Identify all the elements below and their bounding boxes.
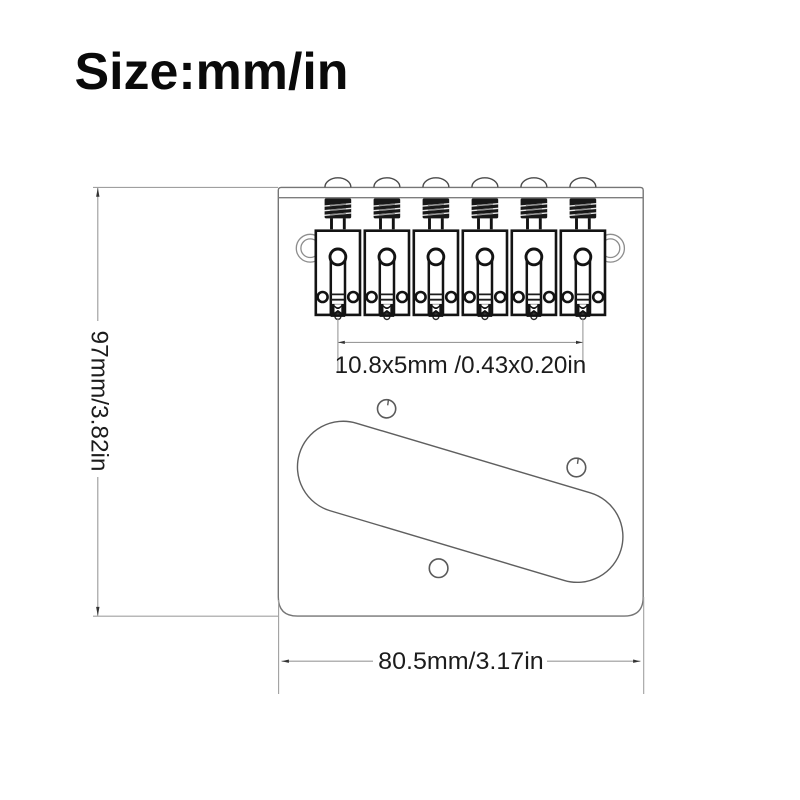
svg-text:Size:mm/in: Size:mm/in (75, 43, 349, 101)
svg-text:10.8x5mm /0.43x0.20in: 10.8x5mm /0.43x0.20in (335, 352, 587, 379)
svg-text:97mm/3.82in: 97mm/3.82in (86, 331, 113, 472)
svg-text:80.5mm/3.17in: 80.5mm/3.17in (378, 648, 544, 675)
